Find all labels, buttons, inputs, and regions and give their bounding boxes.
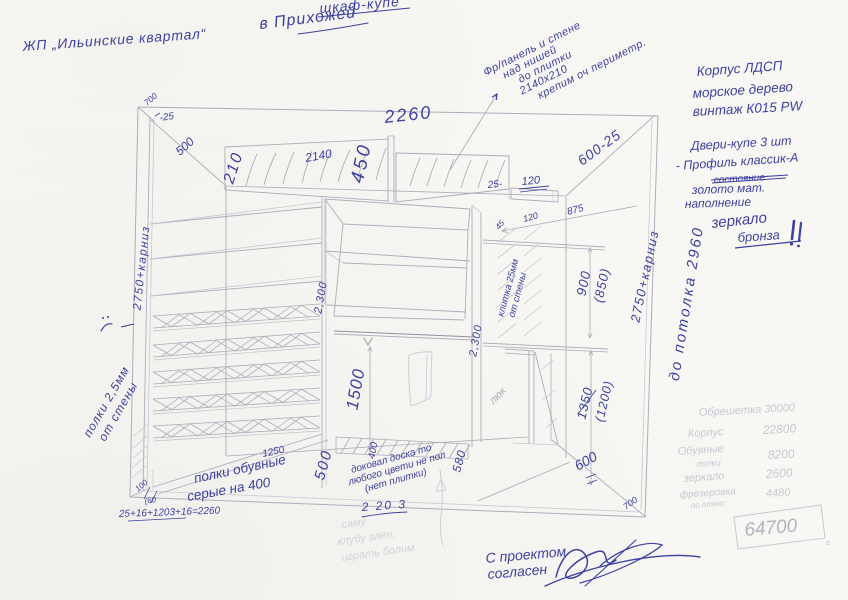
svg-text:2600: 2600 [764, 466, 793, 481]
svg-text:8200: 8200 [767, 447, 795, 462]
svg-text:-25: -25 [159, 111, 175, 124]
svg-text:наполнение: наполнение [685, 195, 752, 211]
svg-text:бронза: бронза [737, 227, 780, 245]
svg-text:г: г [826, 538, 830, 547]
svg-text:полки: полки [696, 457, 721, 469]
svg-text:25-: 25- [486, 179, 503, 191]
svg-text:22800: 22800 [761, 421, 796, 437]
svg-text:Корпус: Корпус [688, 426, 725, 440]
svg-text:4480: 4480 [766, 487, 792, 500]
svg-text:120: 120 [521, 174, 541, 188]
